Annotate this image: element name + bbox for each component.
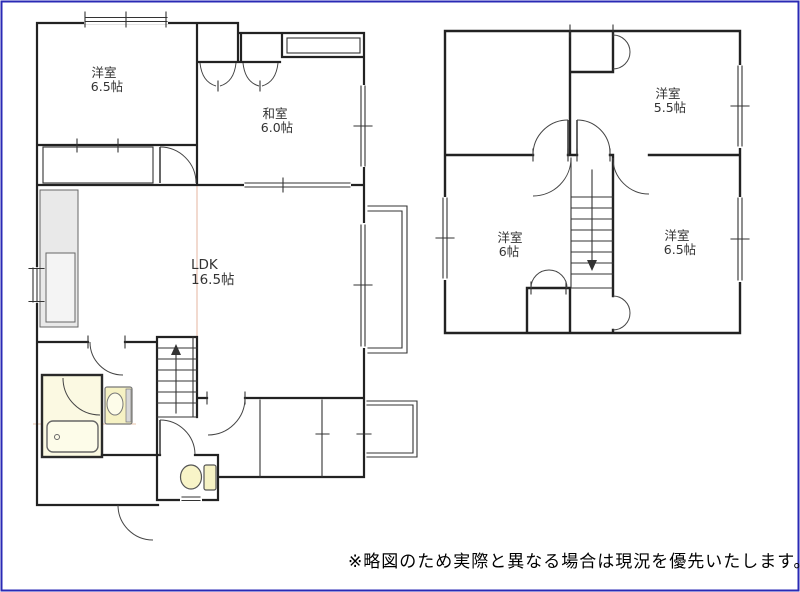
room-label-washitsu-name: 和室 (262, 106, 287, 121)
stairs-2f (571, 158, 613, 288)
room-label-youshitsu-6-size: 6帖 (499, 244, 519, 259)
room-label-youshitsu-1f-name: 洋室 (91, 65, 116, 80)
floor1-doors (63, 63, 278, 540)
entrance-partitions (260, 400, 322, 477)
room-label-ldk-size: 16.5帖 (191, 272, 235, 288)
stairs-1f (157, 337, 197, 417)
floor2-plan: 洋室 5.5帖 洋室 6帖 洋室 6.5帖 (436, 25, 749, 333)
room-label-youshitsu-1f-size: 6.5帖 (91, 79, 123, 94)
room-label-ldk-name: LDK (191, 257, 219, 273)
entrance-porch (367, 401, 417, 457)
room-label-washitsu-size: 6.0帖 (261, 120, 293, 135)
floor1-closets (43, 38, 360, 183)
floor-plan-canvas: 洋室 6.5帖 和室 6.0帖 LDK 16.5帖 (0, 0, 800, 592)
disclaimer-note: ※略図のため実際と異なる場合は現況を優先いたします。 (348, 552, 800, 572)
floor1-plan: 洋室 6.5帖 和室 6.0帖 LDK 16.5帖 (29, 12, 417, 540)
room-label-youshitsu-55-size: 5.5帖 (654, 100, 686, 115)
kitchen-counter (40, 190, 78, 327)
stairs-down-arrow (587, 170, 597, 271)
washbasin (105, 387, 132, 424)
room-label-youshitsu-6-name: 洋室 (497, 230, 522, 245)
balcony (368, 206, 407, 353)
floor2-doors (531, 35, 649, 330)
room-label-youshitsu-55-name: 洋室 (655, 86, 680, 101)
room-label-youshitsu-65-name: 洋室 (664, 228, 689, 243)
room-label-youshitsu-65-size: 6.5帖 (664, 242, 696, 257)
bathroom (42, 375, 102, 457)
toilet (181, 465, 217, 490)
